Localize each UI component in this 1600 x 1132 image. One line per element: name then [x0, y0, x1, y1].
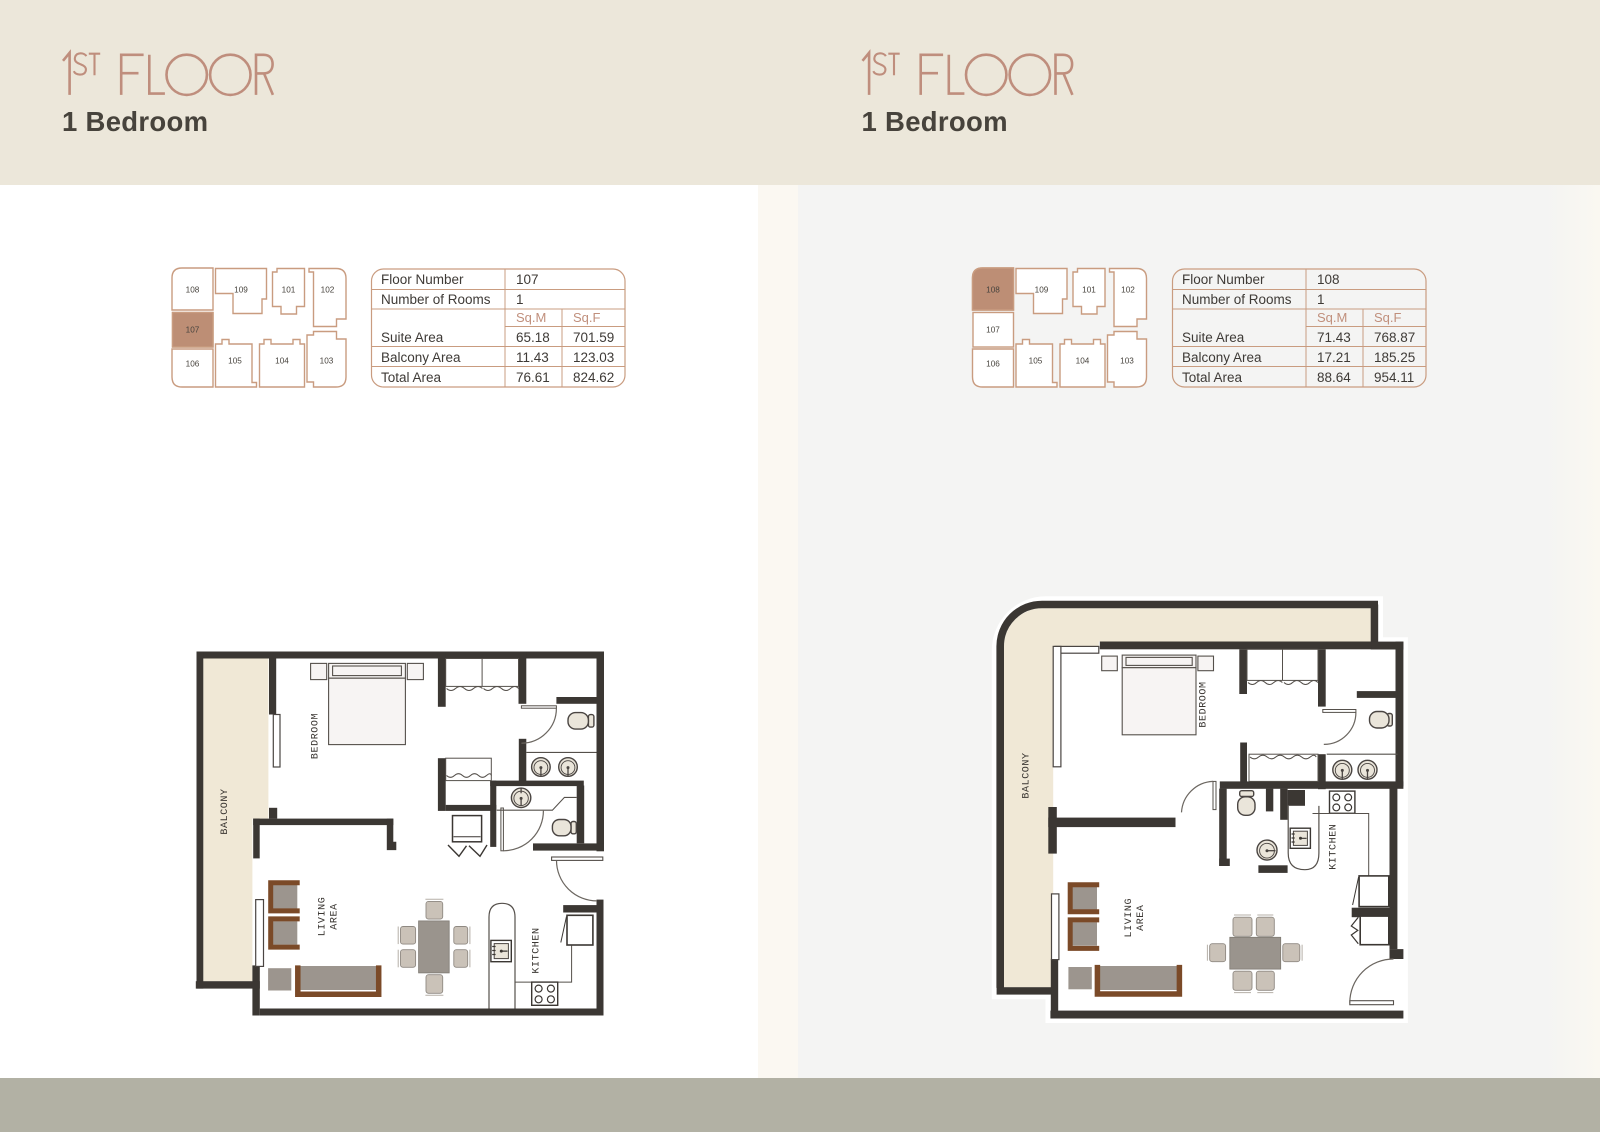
svg-text:BALCONY: BALCONY: [220, 788, 231, 834]
svg-text:107: 107: [516, 272, 539, 287]
svg-text:71.43: 71.43: [1317, 330, 1351, 345]
svg-text:954.11: 954.11: [1374, 370, 1414, 385]
svg-text:Floor Number: Floor Number: [381, 272, 464, 287]
svg-text:824.62: 824.62: [573, 370, 614, 385]
svg-text:KITCHEN: KITCHEN: [1329, 824, 1340, 870]
svg-text:BEDROOM: BEDROOM: [1199, 681, 1210, 727]
svg-text:65.18: 65.18: [516, 330, 550, 345]
svg-text:88.64: 88.64: [1317, 370, 1351, 385]
svg-text:BALCONY: BALCONY: [1022, 752, 1033, 798]
svg-text:KITCHEN: KITCHEN: [532, 927, 543, 973]
svg-text:Balcony Area: Balcony Area: [1182, 350, 1262, 365]
svg-text:185.25: 185.25: [1374, 350, 1415, 365]
svg-text:17.21: 17.21: [1317, 350, 1351, 365]
svg-text:1 Bedroom: 1 Bedroom: [62, 106, 208, 137]
svg-text:Number of Rooms: Number of Rooms: [381, 292, 491, 307]
svg-text:Total Area: Total Area: [381, 370, 442, 385]
svg-text:1: 1: [1317, 292, 1325, 307]
svg-text:Suite Area: Suite Area: [1182, 330, 1245, 345]
svg-text:108: 108: [1317, 272, 1340, 287]
svg-text:Number of Rooms: Number of Rooms: [1182, 292, 1292, 307]
svg-text:Sq.F: Sq.F: [573, 310, 601, 325]
svg-text:BEDROOM: BEDROOM: [311, 713, 322, 759]
svg-text:Suite Area: Suite Area: [381, 330, 444, 345]
svg-text:76.61: 76.61: [516, 370, 550, 385]
svg-text:768.87: 768.87: [1374, 330, 1415, 345]
svg-text:123.03: 123.03: [573, 350, 614, 365]
svg-text:Floor Number: Floor Number: [1182, 272, 1265, 287]
svg-text:1: 1: [516, 292, 524, 307]
svg-text:Sq.F: Sq.F: [1374, 310, 1402, 325]
svg-text:Sq.M: Sq.M: [1317, 310, 1347, 325]
svg-text:11.43: 11.43: [516, 350, 549, 365]
svg-text:Sq.M: Sq.M: [516, 310, 546, 325]
svg-text:701.59: 701.59: [573, 330, 614, 345]
svg-text:Balcony Area: Balcony Area: [381, 350, 461, 365]
svg-text:1 Bedroom: 1 Bedroom: [862, 106, 1008, 137]
svg-text:Total Area: Total Area: [1182, 370, 1243, 385]
